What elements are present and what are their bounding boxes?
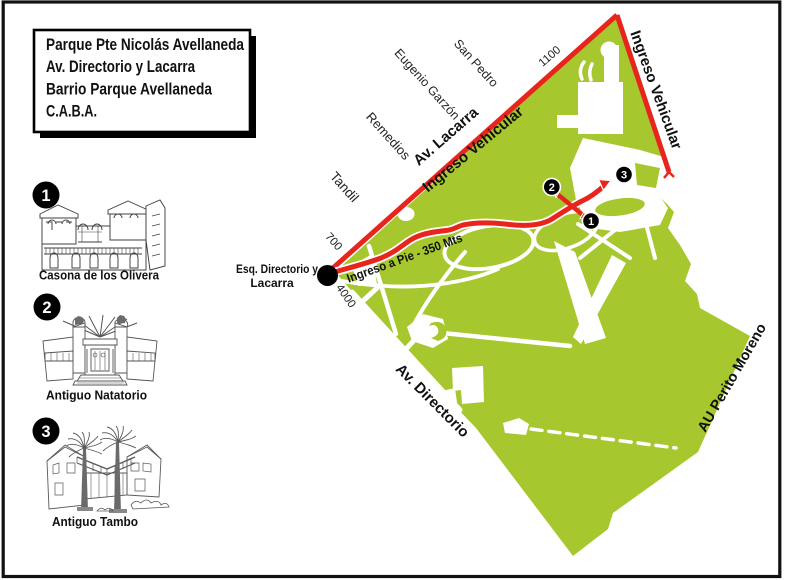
svg-text:3: 3 xyxy=(621,170,627,182)
svg-text:Esq. Directorio y: Esq. Directorio y xyxy=(236,262,318,276)
svg-text:2: 2 xyxy=(549,182,555,194)
svg-text:Av. Directorio y Lacarra: Av. Directorio y Lacarra xyxy=(46,57,195,76)
svg-text:Lacarra: Lacarra xyxy=(250,276,294,290)
svg-text:C.A.B.A.: C.A.B.A. xyxy=(46,102,97,121)
svg-text:Antiguo Natatorio: Antiguo Natatorio xyxy=(46,388,147,403)
svg-text:2: 2 xyxy=(42,299,51,317)
svg-text:1: 1 xyxy=(41,187,50,205)
svg-text:3: 3 xyxy=(41,423,50,441)
svg-text:Parque Pte Nicolás Avellaneda: Parque Pte Nicolás Avellaneda xyxy=(46,35,244,54)
svg-text:Barrio Parque Avellaneda: Barrio Parque Avellaneda xyxy=(46,80,212,99)
svg-text:1: 1 xyxy=(588,216,594,228)
svg-text:Antiguo Tambo: Antiguo Tambo xyxy=(52,514,138,529)
